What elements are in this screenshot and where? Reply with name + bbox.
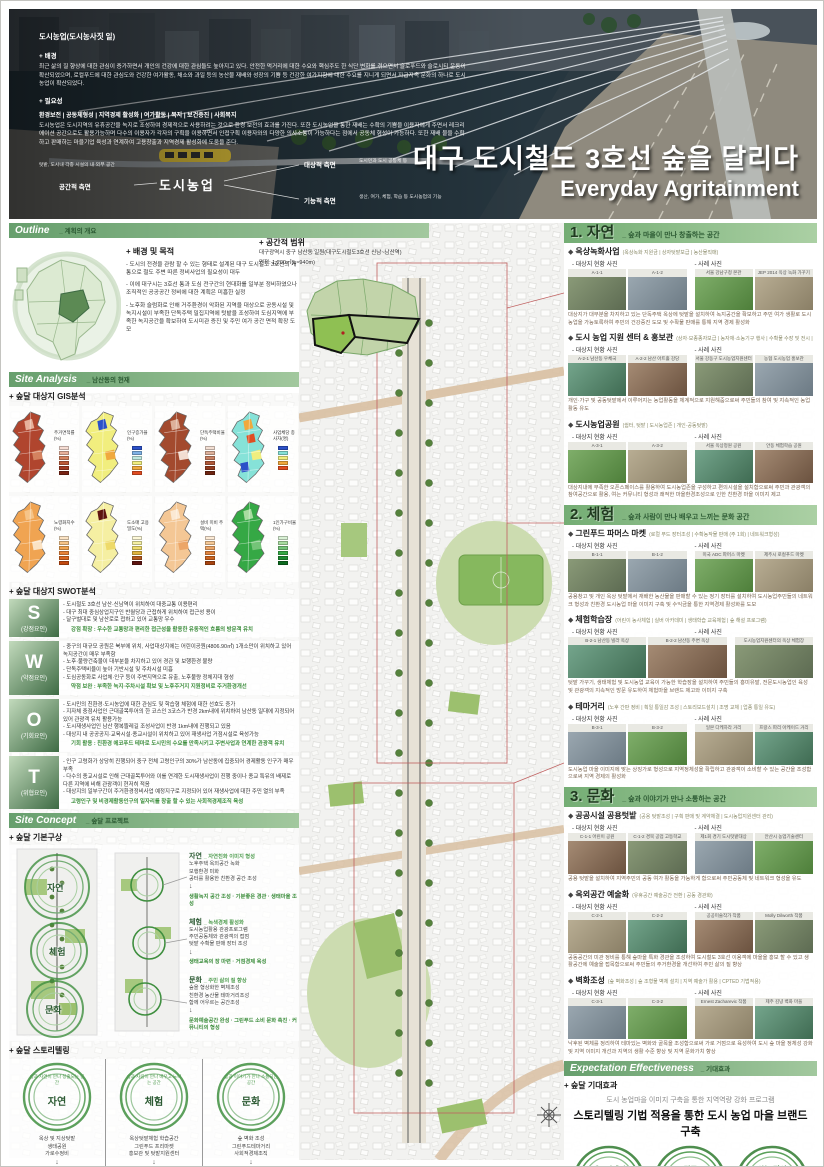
right-column: 1. 자연_ 숲과 마을이 만나 창출하는 공간◆옥상녹화사업(옥상녹화 지원금… [564,223,817,1167]
zone-item: 노후주택 옥외공간 녹화 [189,861,297,868]
photo-image [695,732,753,765]
concept-maps: 자연 체험 문화 [9,845,187,1041]
photo-image [568,450,626,483]
section-title: 2. 체험 [564,505,614,525]
swot-category-label: (위협요인) [21,788,47,797]
swot-items: - 인구 고령화가 상당히 진행되어 중구 전체 고령인구의 30%가 남산동에… [59,756,299,809]
basic-concept-title: + 숲달 기본구상 [9,832,299,843]
program-group: ◆벽화조성(숲 벽화조성 | 숲 조형물 벽체 설치 | 지역 예술가 활용 |… [568,975,813,1056]
swot-items: - 도시철도 3호선 남산·신남역이 위치하여 대중교통 이용편리- 대구 최대… [59,599,299,637]
zone-subtitle: _ 자연친화 이미지 형성 [204,854,255,860]
scope-title: + 공간적 범위 [259,237,434,248]
photo-caption: B-3-1 [568,724,626,732]
group-title: ◆그린푸드 파머스 마켓(로컬 푸드 장터조성 | 수확농작물 판매 (주 1회… [568,528,813,539]
photo-caption: B-3-2 [628,724,686,732]
legend-swatch [59,466,69,470]
photo-labels: - 대상지 현황 사진- 사례 사진 [568,714,813,723]
case-photos-label: - 사례 사진 [691,627,814,636]
swot-row: S(강점요인)- 도시철도 3호선 남산·신남역이 위치하여 대중교통 이용편리… [9,599,299,637]
poster-title-korean: 대구 도시철도 3호선 숲을 달리다 [413,137,799,176]
storytelling-item: 숲과 사람이 만나 배우고 노니는 공간체험옥상텃밭체험 학습공간그린푸드 프리… [105,1059,202,1167]
swot-letter: S [28,604,41,623]
legend-swatch [132,461,142,465]
legend-swatch [205,466,215,470]
photo-row: A-2-1 남산동 우체국A-2-2 남산 아트홀 강당서울 강동구 도시농업지… [568,355,813,396]
photo-image [568,841,626,874]
photo: C-3-2 [628,998,686,1039]
photo-caption: C-1-1 어린이 공원 [568,833,626,841]
site-photos-label: - 대상지 현황 사진 [568,902,691,911]
swot-summary: 고령인구 및 비경제활동인구의 일자리를 창출 할 수 있는 사회적경제조직 육… [63,799,295,807]
diamond-bullet-icon: ◆ [568,978,573,985]
photo: C-2-1 [568,912,626,953]
photo-image [735,645,813,678]
gis-map: 노령화지수(%) [9,496,79,582]
photo-caption: B-2-1 남산동 빌라 옥상 [568,637,646,645]
gis-map-shape [82,496,128,580]
zone-subtitle: _ 녹색경제 활성화 [204,920,244,926]
spatial-scope-block: + 공간적 범위 대구광역시 중구 남산동 일원(대구도시철도3호선 신남~남산… [259,237,434,368]
swot-badge: S(강점요인) [9,599,59,637]
concept-zone-notes: 자연 _ 자연친화 이미지 형성노후주택 옥외공간 녹화보행환경 미화공터를 활… [187,845,299,1041]
expectation-circles: 에브리데이어그리테인먼트옥상텃밭 조성을 통한 생태마을 브랜딩 그린푸드컬처라… [564,1144,817,1167]
photo: A-3-2 [628,442,686,483]
legend-swatch [132,471,142,475]
legend-swatch [205,471,215,475]
gis-map-legend [278,446,288,471]
photo: 미국 ADC 파머스 마켓 [695,551,753,592]
zone-subtitle: _ 주민 삶의 질 향상 [204,978,247,984]
group-description: 낙후된 벽체를 정리하여 테마있는 벽화와 골목을 조성함으로써 가로 거점으로… [568,1041,813,1056]
group-title-text: 벽화조성 [575,976,604,985]
diamond-bullet-icon: ◆ [568,335,573,342]
storytelling-item: 숲과 이야기가 만나 소통되는 공간문화숲 벽화 조성그린푸드테마거리사회적경제… [202,1059,299,1167]
photo: 공공미술작가 작품 [695,912,753,953]
diamond-bullet-icon: ◆ [568,892,573,899]
photo-caption: 안동 체험학습 공원 [755,442,813,450]
zone-item: 숲을 형상화한 벽체조성 [189,985,297,992]
group-title: ◆옥외공간 예술화(유휴공간 예술공간 전환 | 공동 경관화) [568,889,813,900]
swot-title: + 숲달 대상지 SWOT분석 [9,586,299,597]
down-arrow-icon: ↓ [109,1159,199,1167]
photo-row: B-1-1B-1-2미국 ADC 파머스 마켓제주시 로컬푸드 마켓 [568,551,813,592]
group-title: ◆벽화조성(숲 벽화조성 | 숲 조형물 벽체 설치 | 지역 예술가 활용 |… [568,975,813,986]
program-group: ◆옥상녹화사업(옥상녹화 지원금 | 상자텃밭보급 | 농산물직매)- 대상지 … [568,246,813,327]
photo-caption: A-1-1 [568,269,626,277]
photo-row: B-2-1 남산동 빌라 옥상B-2-2 남산동 주변 옥상도시농업지원센터의 … [568,637,813,678]
legend-swatch [205,446,215,450]
group-title-text: 도시 농업 지원 센터 & 홍보관 [575,333,673,342]
legend-swatch [278,551,288,555]
group-title: ◆체험학습장(어린이 농사체험 | 실버 아카데미 | 생태학습 교육체험 | … [568,614,813,625]
legend-swatch [278,561,288,565]
swot-summary: 기회 활용 : 친환경 에코푸드 테마로 도시민의 수요를 만족시키고 주변사업… [63,741,295,749]
down-arrow-icon: ↓ [189,1007,297,1015]
case-photos-label: - 사례 사진 [691,541,814,550]
expectation-subtitle: 도시 농업마을 이미지 구축을 통한 지역역량 강화 프로그램 [564,1095,817,1105]
swot-items: - 도시민의 친환경·도시농업에 대한 관심도 및 학습형 체험에 대한 선호도… [59,699,299,752]
group-title: ◆공공시설 공용텃밭(공용 텃밭조성 | 구획 판매 및 계약체결 | 도시농업… [568,810,813,821]
swot-row: T(위협요인)- 인구 고령화가 상당히 진행되어 중구 전체 고령인구의 30… [9,756,299,809]
site-photos-label: - 대상지 현황 사진 [568,627,691,636]
scope-district-map [297,271,425,363]
photo-caption: Molly Dilworth 작품 [755,912,813,920]
zone-item: 텃밭 수확물 판매 장터 조성 [189,941,297,948]
photo-image [628,841,686,874]
photo-caption: A-2-2 남산 아트홀 강당 [628,355,686,363]
swot-item: - 대상지의 일부구간이 주거환경정비사업 예정지구로 지정되어 있어 재생사업… [63,789,295,797]
swot-category-label: (약점요인) [21,673,47,682]
concept-zone-nature-label: 자연 [47,881,64,894]
storytelling-title: + 숲달 스토리텔링 [9,1045,299,1056]
site-photos-label: - 대상지 현황 사진 [568,432,691,441]
photo-caption: A-3-2 [628,442,686,450]
gis-map-shape [228,496,274,580]
group-description: 공동공간의 미관 정비를 통해 숲마을 특화 경관을 조성하여 도시철도 3호선… [568,955,813,970]
section-title: 1. 자연 [564,223,614,243]
photo-caption: A-2-1 남산동 우체국 [568,355,626,363]
storytelling-row: 숲과 자연이 만나 창출되는 공간자연옥상 및 지상텃밭생태공원가로수정비↓자연… [9,1059,299,1167]
gis-map-title: 단독주택비율(%) [200,430,225,441]
photo: B-1-1 [568,551,626,592]
group-description: 개인·가구 및 공동텃밭에서 이루어지는 농업활동을 체계적으로 지원해줌으로써… [568,398,813,413]
legend-swatch [278,546,288,550]
swot-row: O(기회요인)- 도시민의 친환경·도시농업에 대한 관심도 및 학습형 체험에… [9,699,299,752]
expectation-circle: 하늘 정원아트 빌리지옥외공간 예술화를 통한 예술마을 브랜딩 [734,1144,810,1167]
legend-swatch [132,536,142,540]
photo: B-3-1 [568,724,626,765]
program-group: ◆도시 농업 지원 센터 & 홍보관(상자·모종종자보급 | 농자재·소농기구 … [568,332,813,413]
photo: 농협 도시농업 홍보관 [755,355,813,396]
swot-item: - 다수의 종교시설로 인해 근대골목투어와 이를 연계한 도시재생사업이 진행… [63,774,295,789]
photo-caption: B-2-2 남산동 주변 옥상 [648,637,726,645]
photo-image [568,277,626,310]
photo-image [695,277,753,310]
gis-map: 도소매 고용밀도(%) [82,496,152,582]
photo-image [695,450,753,483]
swot-item: - 인구 고령화가 상당히 진행되어 중구 전체 고령인구의 30%가 남산동에… [63,759,295,774]
gis-map-title: 사업체당 종사자(명) [273,430,298,441]
photo: A-1-2 [628,269,686,310]
photo: 도시농업지원센터의 옥상 체험장 [735,637,813,678]
gis-map-title: 설비 미비 주택(%) [200,520,225,531]
target-label: 대상적 측면 [304,159,336,169]
photo-labels: - 대상지 현황 사진- 사례 사진 [568,988,813,997]
photo: C-1-2 경북 공업 고등학교 [628,833,686,874]
swot-row: W(약점요인)- 중구의 대규모 공원은 북부에 위치, 사업대상지에는 어린이… [9,641,299,694]
diamond-bullet-icon: ◆ [568,422,573,429]
storytelling-item-line: 숲 벽화 조성 [206,1136,296,1144]
photo-image [568,559,626,592]
photo-image [568,732,626,765]
photo-image [628,559,686,592]
photo: 제주 김녕 벽화 마을 [755,998,813,1039]
hero-need-text: 도시농업은 도시지역의 유휴공간을 녹지로 조성하여 경제적으로 사용하려는 것… [39,122,469,148]
group-title-text: 체험학습장 [575,615,612,624]
photo-caption: 일본 다케하라 거리 [695,724,753,732]
expectation-header: Expectation Effectiveness_ 기대효과 [564,1061,817,1076]
zone-result: 문화예술공간 완성 · 그린푸드 소비 문화 촉진 · 커뮤니티의 형성 [189,1018,297,1032]
photo-caption: B-1-2 [628,551,686,559]
case-photos-label: - 사례 사진 [691,259,814,268]
legend-swatch [278,536,288,540]
group-tags: (상자·모종종자보급 | 농자재·소농기구 행사 | 수확물 수장 및 전시 |… [676,336,813,342]
hero-intro-text: 도시농업(도시농사짓 일) + 배경 최근 삶의 질 향상에 대한 관심이 증가… [39,31,469,147]
swot-letter: O [27,711,42,730]
legend-swatch [132,541,142,545]
legend-swatch [132,556,142,560]
photo: 제주시 로컬푸드 마켓 [755,551,813,592]
program-group: ◆체험학습장(어린이 농사체험 | 실버 아카데미 | 생태학습 교육체험 | … [568,614,813,695]
swot-item: - 도심공동화로 사업체·인구 등이 주변지역으로 유출, 노후불량 정체지대 … [63,675,295,683]
gis-map-shape [82,406,128,490]
photo: Ernest Zacharevic 작품 [695,998,753,1039]
poster-title: 대구 도시철도 3호선 숲을 달리다 Everyday Agritainment [413,137,799,202]
swot-letter: T [28,768,40,787]
gis-map-shape [9,496,55,580]
scope-line1: 대구광역시 중구 남산동 일원(대구도시철도3호선 신남~남산역) [259,250,409,258]
program-group: ◆테마거리(노후 간판 정비 | 획일 통일감 조성 | 스토리보드설치 | 조… [568,701,813,782]
gis-map-legend [278,536,288,566]
gis-map-shape [155,496,201,580]
swot-category-label: (기회요인) [21,731,47,740]
diagram-center-label: 도시농업 [159,175,215,194]
photo-image [568,1006,626,1039]
photo-caption: 서울 강동구 도시농업지원센터 [695,355,753,363]
left-column: Outline _ 계획의 개요 + 배경 및 목적 - 도시의 전경을 관람 … [9,223,299,1167]
photo: A-2-2 남산 아트홀 강당 [628,355,686,396]
photo-labels: - 대상지 현황 사진- 사례 사진 [568,432,813,441]
photo: B-3-2 [628,724,686,765]
legend-swatch [132,466,142,470]
photo-image [755,559,813,592]
photo: JEP 2014 옥상 녹화 가꾸기 [755,269,813,310]
storytelling-item-line: 가로수정비 [12,1151,102,1159]
zone-item: 보행환경 미화 [189,869,297,876]
group-title-text: 옥외공간 예술화 [575,890,629,899]
photo-image [755,363,813,396]
photo-caption: 농협 도시농업 홍보관 [755,355,813,363]
concept-zone-note: 체험 _ 녹색경제 활성화도시농업활용 관광프로그램주민공동체와 관광객의 접점… [189,917,297,966]
photo-row: A-1-1A-1-2서울 강남구청 본관JEP 2014 옥상 녹화 가꾸기 [568,269,813,310]
legend-swatch [59,551,69,555]
spatial-label: 공간적 측면 [59,181,91,191]
photo-caption: 미국 ADC 파머스 마켓 [695,551,753,559]
photo-labels: - 대상지 현황 사진- 사례 사진 [568,259,813,268]
photo: A-1-1 [568,269,626,310]
concept-diagram: 자연 체험 문화 자연 _ 자연친화 이미지 형성노후주택 옥외공간 녹화보행환… [9,845,299,1041]
gis-map: 단독주택비율(%) [155,406,225,492]
concept-zone-note: 자연 _ 자연친화 이미지 형성노후주택 옥외공간 녹화보행환경 미화공터를 활… [189,851,297,908]
zone-title: 문화 _ 주민 삶의 질 향상 [189,975,297,985]
gis-map-title: 주거면적률(%) [54,430,79,441]
group-title-text: 도시농업공원 [575,420,619,429]
photo: B-2-2 남산동 주변 옥상 [648,637,726,678]
gis-map: 설비 미비 주택(%) [155,496,225,582]
photo-labels: - 대상지 현황 사진- 사례 사진 [568,345,813,354]
gis-map: 1인가구비율(%) [228,496,298,582]
hero-heading: 도시농업(도시농사짓 일) [39,31,469,42]
zone-title: 체험 _ 녹색경제 활성화 [189,917,297,927]
gis-map-title: 1인가구비율(%) [273,520,298,531]
concept-zone-note: 문화 _ 주민 삶의 질 향상숲을 형상화한 벽체조성친환경 농산물 테마거리조… [189,975,297,1032]
group-title-text: 옥상녹화사업 [575,247,619,256]
section-subtitle: _ 숲과 사람이 만나 배우고 느끼는 문화 공간 [622,512,749,522]
legend-swatch [205,541,215,545]
legend-swatch [59,561,69,565]
legend-swatch [59,546,69,550]
photo-row: C-2-1C-2-2공공미술작가 작품Molly Dilworth 작품 [568,912,813,953]
site-photos-label: - 대상지 현황 사진 [568,823,691,832]
swot-items: - 중구의 대규모 공원은 북부에 위치, 사업대상지에는 어린이공원(4806… [59,641,299,694]
photo-image [628,920,686,953]
photo-image [568,645,646,678]
storytelling-caption: 숲과 사람이 만나 배우고 노니는 공간 [126,1074,182,1086]
gis-map-title: 인구증가율(%) [127,430,152,441]
photo-caption: B-1-1 [568,551,626,559]
diamond-bullet-icon: ◆ [568,704,573,711]
photo-caption: 안산시 농업기술센터 [755,833,813,841]
swot-item: - 중구의 대규모 공원은 북부에 위치, 사업대상지에는 어린이공원(4806… [63,644,295,659]
program-group: ◆공공시설 공용텃밭(공용 텃밭조성 | 구획 판매 및 계약체결 | 도시농업… [568,810,813,884]
expectation-circle: 그린푸드컬처라이프마을 파머스마켓 조성을 통한 체험마을 브랜딩 [652,1144,728,1167]
swot-analysis: S(강점요인)- 도시철도 3호선 남산·신남역이 위치하여 대중교통 이용편리… [9,599,299,809]
down-arrow-icon: ↓ [206,1159,296,1167]
photo-caption: 제주 김녕 벽화 마을 [755,998,813,1006]
case-photos-label: - 사례 사진 [691,902,814,911]
swot-badge: O(기회요인) [9,699,59,752]
poster-title-english: Everyday Agritainment [413,176,799,202]
legend-swatch [59,451,69,455]
photo-labels: - 대상지 현황 사진- 사례 사진 [568,541,813,550]
photo-image [695,559,753,592]
gis-map: 사업체당 종사자(명) [228,406,298,492]
gis-map-legend [59,446,69,476]
swot-summary: 약점 보완 : 부족한 녹지·주차시설 확보 및 노후주거지 지원정비로 주거환… [63,684,295,692]
gis-map-shape [155,406,201,490]
zone-result: 생활녹지 공간 조성 · 기분좋은 경관 · 생태마을 조성 [189,894,297,908]
case-photos-label: - 사례 사진 [691,823,814,832]
storytelling-ring: 숲과 이야기가 만나 소통되는 공간문화 [215,1061,287,1133]
gis-map-row-1: 주거면적률(%) 인구증가율(%) 단독주택비율(%) 사업체당 종사자(명) [9,406,299,492]
photo-image [628,732,686,765]
group-title: ◆도시 농업 지원 센터 & 홍보관(상자·모종종자보급 | 농자재·소농기구 … [568,332,813,343]
legend-swatch [132,546,142,550]
photo-image [695,363,753,396]
group-title: ◆옥상녹화사업(옥상녹화 지원금 | 상자텃밭보급 | 농산물직매) [568,246,813,257]
legend-swatch [59,471,69,475]
legend-swatch [132,446,142,450]
photo-caption: 프랑스 파리 아케이드 거리 [755,724,813,732]
swot-category-label: (강점요인) [21,624,47,633]
photo: B-2-1 남산동 빌라 옥상 [568,637,646,678]
site-photos-label: - 대상지 현황 사진 [568,259,691,268]
site-photos-label: - 대상지 현황 사진 [568,714,691,723]
legend-swatch [278,556,288,560]
program-group: ◆옥외공간 예술화(유휴공간 예술공간 전환 | 공동 경관화)- 대상지 현황… [568,889,813,970]
legend-swatch [278,451,288,455]
photo-image [755,277,813,310]
gis-map-title: 도소매 고용밀도(%) [127,520,152,531]
storytelling-item: 숲과 자연이 만나 창출되는 공간자연옥상 및 지상텃밭생태공원가로수정비↓자연… [9,1059,105,1167]
group-tags: (로컬 푸드 장터조성 | 수확농작물 판매 (주 1회) | 네트워크형성) [649,532,779,538]
diamond-bullet-icon: ◆ [568,617,573,624]
photo-caption: C-2-1 [568,912,626,920]
group-tags: (노후 간판 정비 | 획일 통일감 조성 | 스토리보드설치 | 조명 교체 … [608,705,775,711]
photo-caption: JEP 2014 옥상 녹화 가꾸기 [755,269,813,277]
gis-map-shape [228,406,274,490]
storytelling-caption: 숲과 이야기가 만나 소통되는 공간 [223,1074,279,1086]
outline-header-sub: _ 계획의 개요 [59,228,96,235]
group-tags: (숲 벽화조성 | 숲 조형물 벽체 설치 | 지역 예술가 활용 | CPTE… [608,979,761,985]
legend-swatch [205,561,215,565]
photo: 서울 옥상정원 공원 [695,442,753,483]
photo-image [628,277,686,310]
swot-letter: W [25,653,43,672]
storytelling-name: 자연 [21,1093,93,1108]
group-tags: (쉼터, 텃밭 | 도시농업존 | 개인·공동텃밭) [623,423,708,429]
photo: C-3-1 [568,998,626,1039]
gis-map-legend [205,446,215,476]
group-description: 도시농업 마을 이미지에 맞는 상징가로 형성으로 지역정체성을 확립하고 관광… [568,767,813,782]
photo-caption: 제1회 경기 도시텃밭대상 [695,833,753,841]
diamond-bullet-icon: ◆ [568,813,573,820]
photo-caption: A-1-2 [628,269,686,277]
outline-content: + 배경 및 목적 - 도시의 전경을 관람 할 수 있는 형태로 설계된 대구… [9,242,299,368]
storytelling-item-line: 홍보관 및 텃밭지원센터 [109,1151,199,1159]
photo-row: B-3-1B-3-2일본 다케하라 거리프랑스 파리 아케이드 거리 [568,724,813,765]
down-arrow-icon: ↓ [12,1159,102,1167]
legend-swatch [205,546,215,550]
spiral-ring-icon [652,1144,728,1167]
legend-swatch [59,446,69,450]
photo-image [648,645,726,678]
photo-caption: A-3-1 [568,442,626,450]
legend-swatch [205,556,215,560]
photo-labels: - 대상지 현황 사진- 사례 사진 [568,902,813,911]
section-header: 1. 자연_ 숲과 마을이 만나 창출하는 공간 [564,223,817,243]
legend-swatch [278,541,288,545]
legend-swatch [132,456,142,460]
hero-keywords: 환경보전 | 공동체형성 | 지역경제 활성화 | 여가활동 | 복지 | 보건… [39,110,469,119]
swot-item: - 대상지 내 공공공지·교육시설·종교시설이 위치하고 있어 재생사업 거점시… [63,732,295,740]
storytelling-ring: 숲과 사람이 만나 배우고 노니는 공간체험 [118,1061,190,1133]
storytelling-items: 숲 벽화 조성그린푸드테마거리사회적경제조직 [206,1136,296,1159]
photo-row: C-3-1C-3-2Ernest Zacharevic 작품제주 김녕 벽화 마… [568,998,813,1039]
photo: 프랑스 파리 아케이드 거리 [755,724,813,765]
legend-swatch [205,536,215,540]
functional-label: 기능적 측면 [304,195,336,205]
diamond-bullet-icon: ◆ [568,249,573,256]
photo-image [755,732,813,765]
hero-background-text: 최근 삶의 질 향상에 대한 관심이 증가하면서 개인의 건강에 대한 관심들도… [39,63,469,89]
zone-title: 자연 _ 자연친화 이미지 형성 [189,851,297,861]
case-photos-label: - 사례 사진 [691,345,814,354]
swot-item: - 달구벌대로 및 남산로로 접하고 있어 교통망 우수 [63,617,295,625]
section-subtitle: _ 숲과 이야기가 만나 소통하는 공간 [622,794,726,804]
poster: 도시농업(도시농사짓 일) + 배경 최근 삶의 질 향상에 대한 관심이 증가… [0,0,824,1167]
photo-image [568,920,626,953]
storytelling-ring: 숲과 자연이 만나 창출되는 공간자연 [21,1061,93,1133]
group-description: 대상지내에 부족한 오픈스페이스를 활용하여 도시농업존을 구성하고 편의시설을… [568,485,813,500]
swot-summary: 강점 확장 : 우수한 교통망과 편리한 접근성을 활용한 유동적인 흐름의 방… [63,627,295,635]
photo-caption: Ernest Zacharevic 작품 [695,998,753,1006]
photo: B-1-2 [628,551,686,592]
legend-swatch [278,461,288,465]
hero-background-label: + 배경 [39,50,469,60]
program-group: ◆그린푸드 파머스 마켓(로컬 푸드 장터조성 | 수확농작물 판매 (주 1회… [568,528,813,609]
photo-caption: 공공미술작가 작품 [695,912,753,920]
